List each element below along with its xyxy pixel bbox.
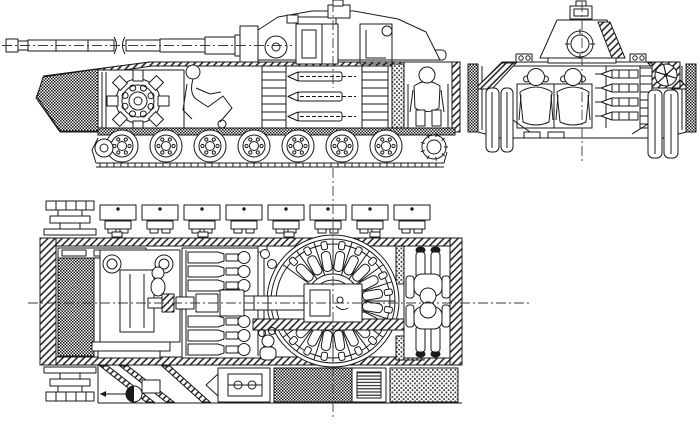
road-wheel	[238, 130, 270, 162]
fuel-tank-dark	[274, 368, 352, 402]
ammo-rack-side	[262, 66, 388, 130]
leg	[416, 326, 425, 352]
tank-blueprint-svg: Tank internal layout cutaway technical d…	[0, 0, 700, 424]
crew-head	[420, 302, 436, 318]
arm	[442, 276, 450, 298]
rear-armor	[452, 62, 460, 132]
hull-top-armor	[40, 238, 462, 246]
leg	[431, 326, 440, 352]
turret-sight	[570, 6, 592, 19]
wheel-arm-box	[142, 380, 160, 393]
crew-compartment-plan	[404, 246, 450, 358]
stowed-round	[188, 330, 250, 342]
track-link	[268, 205, 304, 233]
crew-head	[528, 69, 545, 86]
track-link	[100, 205, 136, 233]
road-wheel	[150, 130, 182, 162]
track-link	[310, 205, 346, 233]
gunner-sight	[328, 5, 350, 18]
crew-torso	[414, 82, 440, 112]
loader-figure	[151, 267, 165, 296]
fuel-tank-light	[390, 368, 458, 402]
torsion-housing	[548, 132, 564, 138]
stowed-round	[188, 266, 250, 278]
crew-head	[419, 67, 435, 83]
left-track-band	[468, 64, 478, 132]
hull-left-armor	[40, 238, 56, 365]
radiator-grille	[357, 372, 381, 398]
drive-sprocket-bottom	[44, 367, 96, 401]
stowed-round	[188, 252, 250, 264]
crew-head	[565, 69, 582, 86]
stowed-round	[188, 316, 250, 328]
left-periscope	[516, 54, 532, 62]
road-wheel	[194, 130, 226, 162]
stowed-round	[188, 344, 250, 356]
tank-blueprint: Tank internal layout cutaway technical d…	[0, 0, 700, 424]
right-track-band	[686, 64, 696, 132]
engine-bay	[58, 258, 94, 356]
engine	[98, 70, 184, 132]
rear-bulkhead	[392, 64, 404, 132]
arm	[406, 276, 414, 298]
road-wheel	[282, 130, 314, 162]
front-idler	[95, 139, 113, 157]
torsion-housing	[524, 132, 540, 138]
gun-mantlet	[240, 26, 258, 62]
track-link	[226, 205, 262, 233]
arm	[442, 305, 450, 327]
track-link	[142, 205, 178, 233]
belly-armor	[98, 128, 455, 135]
track-link	[184, 205, 220, 233]
track-link	[394, 205, 430, 233]
drive-sprocket-top	[44, 201, 96, 235]
track-link	[352, 205, 388, 233]
trunnion	[265, 36, 287, 58]
right-periscope	[630, 54, 646, 62]
hull-right-armor	[450, 238, 462, 365]
road-wheel	[370, 130, 402, 162]
road-wheel	[326, 130, 358, 162]
arm	[406, 305, 414, 327]
cooling-fan	[652, 62, 680, 88]
rear-crew-compartment	[404, 50, 454, 132]
